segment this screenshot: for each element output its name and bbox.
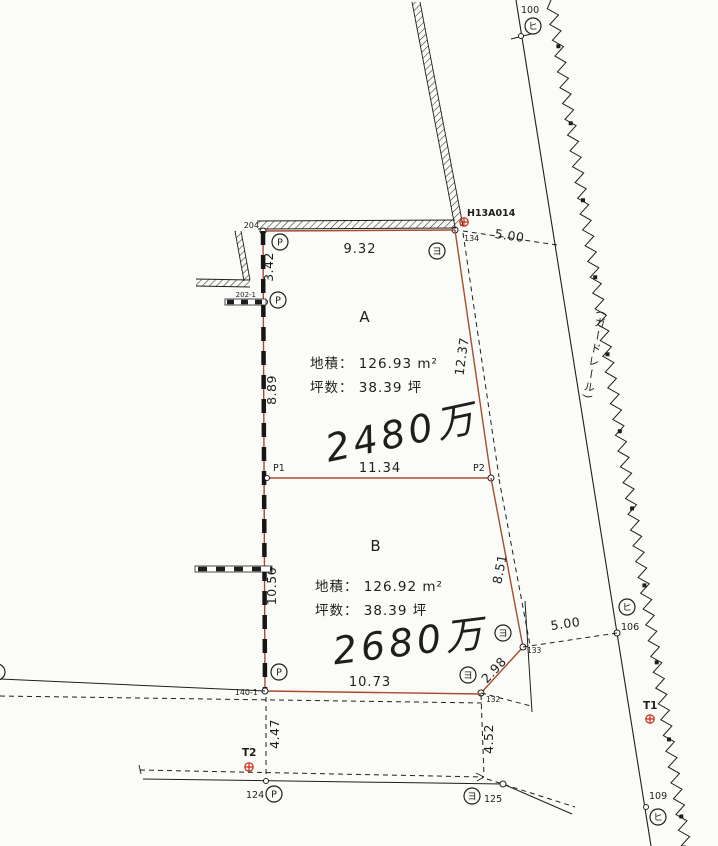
t1-benchmark-marker [646, 715, 654, 723]
t2-benchmark-marker [245, 763, 253, 771]
dim-ext-left: 4.47 [267, 719, 282, 749]
fence-bar-upper [225, 299, 266, 305]
svg-text:ヒ: ヒ [528, 22, 538, 33]
svg-text:ヨ: ヨ [467, 792, 477, 803]
point-124-label: 124 [246, 790, 264, 801]
point-125-label: 125 [484, 794, 502, 805]
marker-stake-125: ヨ [464, 788, 480, 804]
h13a014-benchmark-marker [460, 218, 468, 226]
svg-text:P: P [276, 668, 282, 679]
svg-text:ヨ: ヨ [463, 671, 473, 682]
marker-pin-100: ヒ [525, 18, 541, 34]
parcel-b-name: B [370, 537, 381, 555]
svg-text:P: P [277, 238, 283, 249]
point-134-label: 134 [464, 234, 479, 243]
dim-ext-mid: 4.52 [481, 724, 496, 754]
top-wall-hatch [257, 220, 456, 229]
svg-text:P: P [271, 790, 277, 801]
survey-drawing-sheet: (ガードレール) 100 ヒ 106 ヒ 109 ヒ T1 134 H13A01… [0, 0, 718, 846]
dim-bottom-edge: 10.73 [349, 675, 391, 690]
parcel-a-tsubo: 坪数： 38.39 坪 [310, 380, 422, 396]
t2-label: T2 [242, 747, 256, 759]
dim-left-lower: 10.56 [264, 567, 279, 605]
marker-stake-132: ヨ [460, 667, 476, 683]
point-109-label: 109 [649, 791, 667, 802]
point-100-label: 100 [521, 5, 539, 16]
point-202-label: 202-1 [236, 291, 256, 299]
survey-point-109 [644, 805, 649, 810]
point-106-label: 106 [621, 622, 639, 633]
marker-stake-133: ヨ [495, 625, 511, 641]
point-204-label: 204 [244, 221, 259, 230]
marker-stake-top-right: ヨ [429, 243, 445, 259]
marker-pin-109: ヒ [650, 809, 666, 825]
survey-point-100 [519, 34, 524, 39]
dim-top-edge: 9.32 [344, 242, 377, 257]
marker-stake-124: P [266, 786, 282, 802]
marker-stake-top-left: P [272, 234, 288, 250]
svg-text:ヨ: ヨ [498, 629, 508, 640]
point-p2-label: P2 [473, 463, 485, 474]
marker-pin-106: ヒ [619, 599, 635, 615]
dim-left-upper: 3.42 [261, 252, 276, 282]
svg-text:ヒ: ヒ [653, 813, 663, 824]
survey-point-p1 [265, 476, 270, 481]
fence-bar-lower [195, 566, 272, 572]
svg-text:ヨ: ヨ [432, 247, 442, 258]
t1-label: T1 [643, 700, 657, 712]
parcel-b-tsubo: 坪数： 38.39 坪 [315, 603, 427, 619]
dim-left-mid: 8.89 [264, 375, 279, 405]
survey-point-125 [500, 781, 506, 787]
svg-text:P: P [275, 296, 281, 307]
parcel-b-area: 地積： 126.92 m² [315, 579, 443, 595]
parcel-a-name: A [359, 308, 370, 326]
benchmark-id-label: H13A014 [467, 208, 516, 219]
point-133-label: 133 [527, 646, 542, 655]
survey-point-124 [264, 779, 269, 784]
survey-drawing: (ガードレール) 100 ヒ 106 ヒ 109 ヒ T1 134 H13A01… [0, 0, 718, 846]
marker-stake-140: P [271, 664, 287, 680]
svg-text:ヒ: ヒ [622, 603, 632, 614]
dim-divider: 11.34 [359, 461, 401, 476]
marker-stake-202: P [270, 292, 286, 308]
parcel-a-area: 地積： 126.93 m² [310, 356, 438, 372]
boundary-top-edge [263, 230, 455, 231]
point-p1-label: P1 [273, 463, 285, 474]
